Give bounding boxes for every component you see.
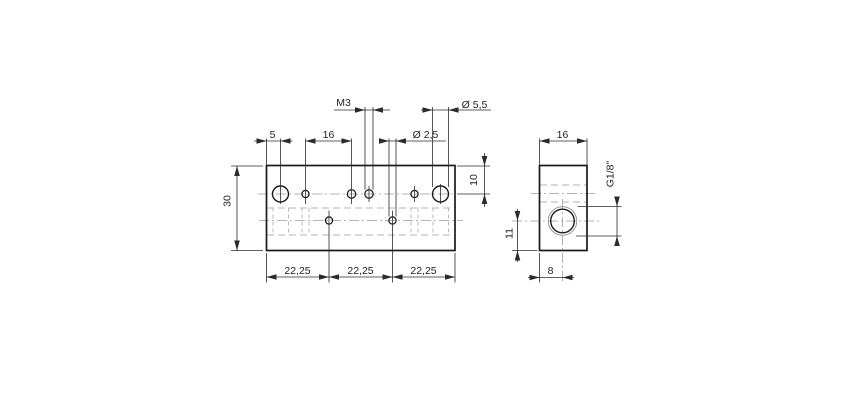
dim-arrow bbox=[393, 274, 403, 280]
dim-arrow bbox=[234, 241, 240, 251]
port-label-g18: G1/8" bbox=[605, 160, 617, 187]
dim-label-2225-2: 22,25 bbox=[347, 265, 373, 277]
dim-label-8: 8 bbox=[548, 265, 554, 277]
dim-arrow bbox=[306, 138, 316, 144]
dim-arrow bbox=[383, 274, 393, 280]
side-dimension-labels: 16 G1/8" 11 8 bbox=[504, 129, 617, 277]
technical-drawing: 5 16 M3 Ø 2,5 Ø 5,5 30 10 22,25 22,25 22… bbox=[0, 0, 865, 420]
dim-arrow bbox=[319, 274, 329, 280]
drawing-canvas: 5 16 M3 Ø 2,5 Ø 5,5 30 10 22,25 22,25 22… bbox=[0, 0, 865, 420]
front-hidden-lines bbox=[267, 208, 455, 236]
dim-arrow bbox=[445, 274, 455, 280]
dim-arrow bbox=[563, 275, 573, 281]
dim-label-10: 10 bbox=[468, 174, 480, 186]
dim-arrow bbox=[373, 107, 383, 113]
side-body-outline bbox=[540, 166, 588, 251]
dim-arrow bbox=[423, 107, 433, 113]
dim-arrow bbox=[355, 107, 365, 113]
side-view: 16 G1/8" 11 8 bbox=[504, 129, 622, 283]
front-holes bbox=[273, 186, 449, 224]
dim-arrow bbox=[577, 138, 587, 144]
dim-arrow bbox=[329, 274, 339, 280]
dim-arrow bbox=[257, 138, 267, 144]
dim-arrow bbox=[515, 211, 521, 221]
dia-label-5-5: Ø 5,5 bbox=[462, 99, 488, 111]
dim-arrow bbox=[267, 274, 277, 280]
dim-arrow bbox=[515, 251, 521, 261]
dim-arrow bbox=[614, 197, 620, 207]
dim-arrow bbox=[281, 138, 291, 144]
dim-label-16-side: 16 bbox=[557, 129, 569, 141]
dim-label-2225-3: 22,25 bbox=[410, 265, 436, 277]
dim-arrow bbox=[482, 194, 488, 204]
front-view: 5 16 M3 Ø 2,5 Ø 5,5 30 10 22,25 22,25 22… bbox=[222, 97, 492, 283]
dim-arrow bbox=[342, 138, 352, 144]
dia-label-2-5: Ø 2,5 bbox=[413, 129, 439, 141]
dim-arrow bbox=[530, 275, 540, 281]
dim-arrow bbox=[379, 138, 389, 144]
side-dimension-lines bbox=[515, 138, 620, 280]
dim-label-2225-1: 22,25 bbox=[284, 265, 310, 277]
dim-arrow bbox=[540, 138, 550, 144]
dim-arrow bbox=[396, 138, 406, 144]
dim-label-30: 30 bbox=[222, 195, 234, 207]
dim-arrow bbox=[482, 156, 488, 166]
dim-arrow bbox=[449, 107, 459, 113]
dim-label-11: 11 bbox=[504, 228, 516, 239]
dim-arrow bbox=[234, 166, 240, 176]
dim-label-16: 16 bbox=[323, 129, 335, 141]
dim-label-5: 5 bbox=[270, 129, 276, 141]
thread-label-m3: M3 bbox=[336, 97, 351, 109]
dim-arrow bbox=[614, 236, 620, 246]
